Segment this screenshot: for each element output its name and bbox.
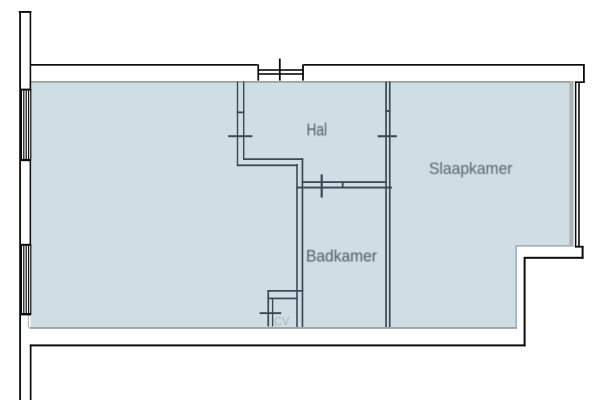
svg-text:Badkamer: Badkamer bbox=[306, 247, 377, 266]
svg-text:Slaapkamer: Slaapkamer bbox=[429, 159, 513, 178]
svg-text:Hal: Hal bbox=[307, 120, 328, 140]
svg-text:CV: CV bbox=[274, 317, 290, 329]
